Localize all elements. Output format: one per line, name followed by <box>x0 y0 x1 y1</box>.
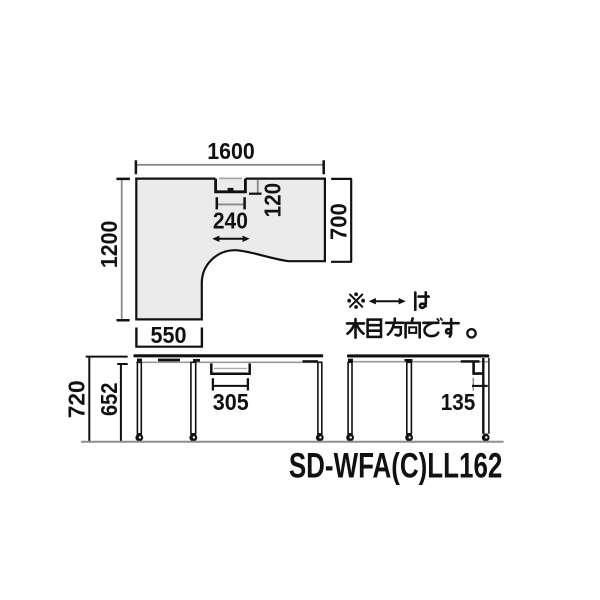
svg-text:652: 652 <box>96 383 122 417</box>
svg-text:SD-WFA(C)LL162: SD-WFA(C)LL162 <box>289 446 503 486</box>
svg-text:120: 120 <box>259 183 285 218</box>
svg-text:1600: 1600 <box>207 138 255 164</box>
svg-text:550: 550 <box>151 322 187 348</box>
svg-text:720: 720 <box>64 380 90 418</box>
svg-text:135: 135 <box>441 389 476 415</box>
svg-text:700: 700 <box>326 203 352 240</box>
svg-text:240: 240 <box>213 207 248 233</box>
svg-text:1200: 1200 <box>96 221 122 269</box>
svg-text:305: 305 <box>213 389 249 415</box>
